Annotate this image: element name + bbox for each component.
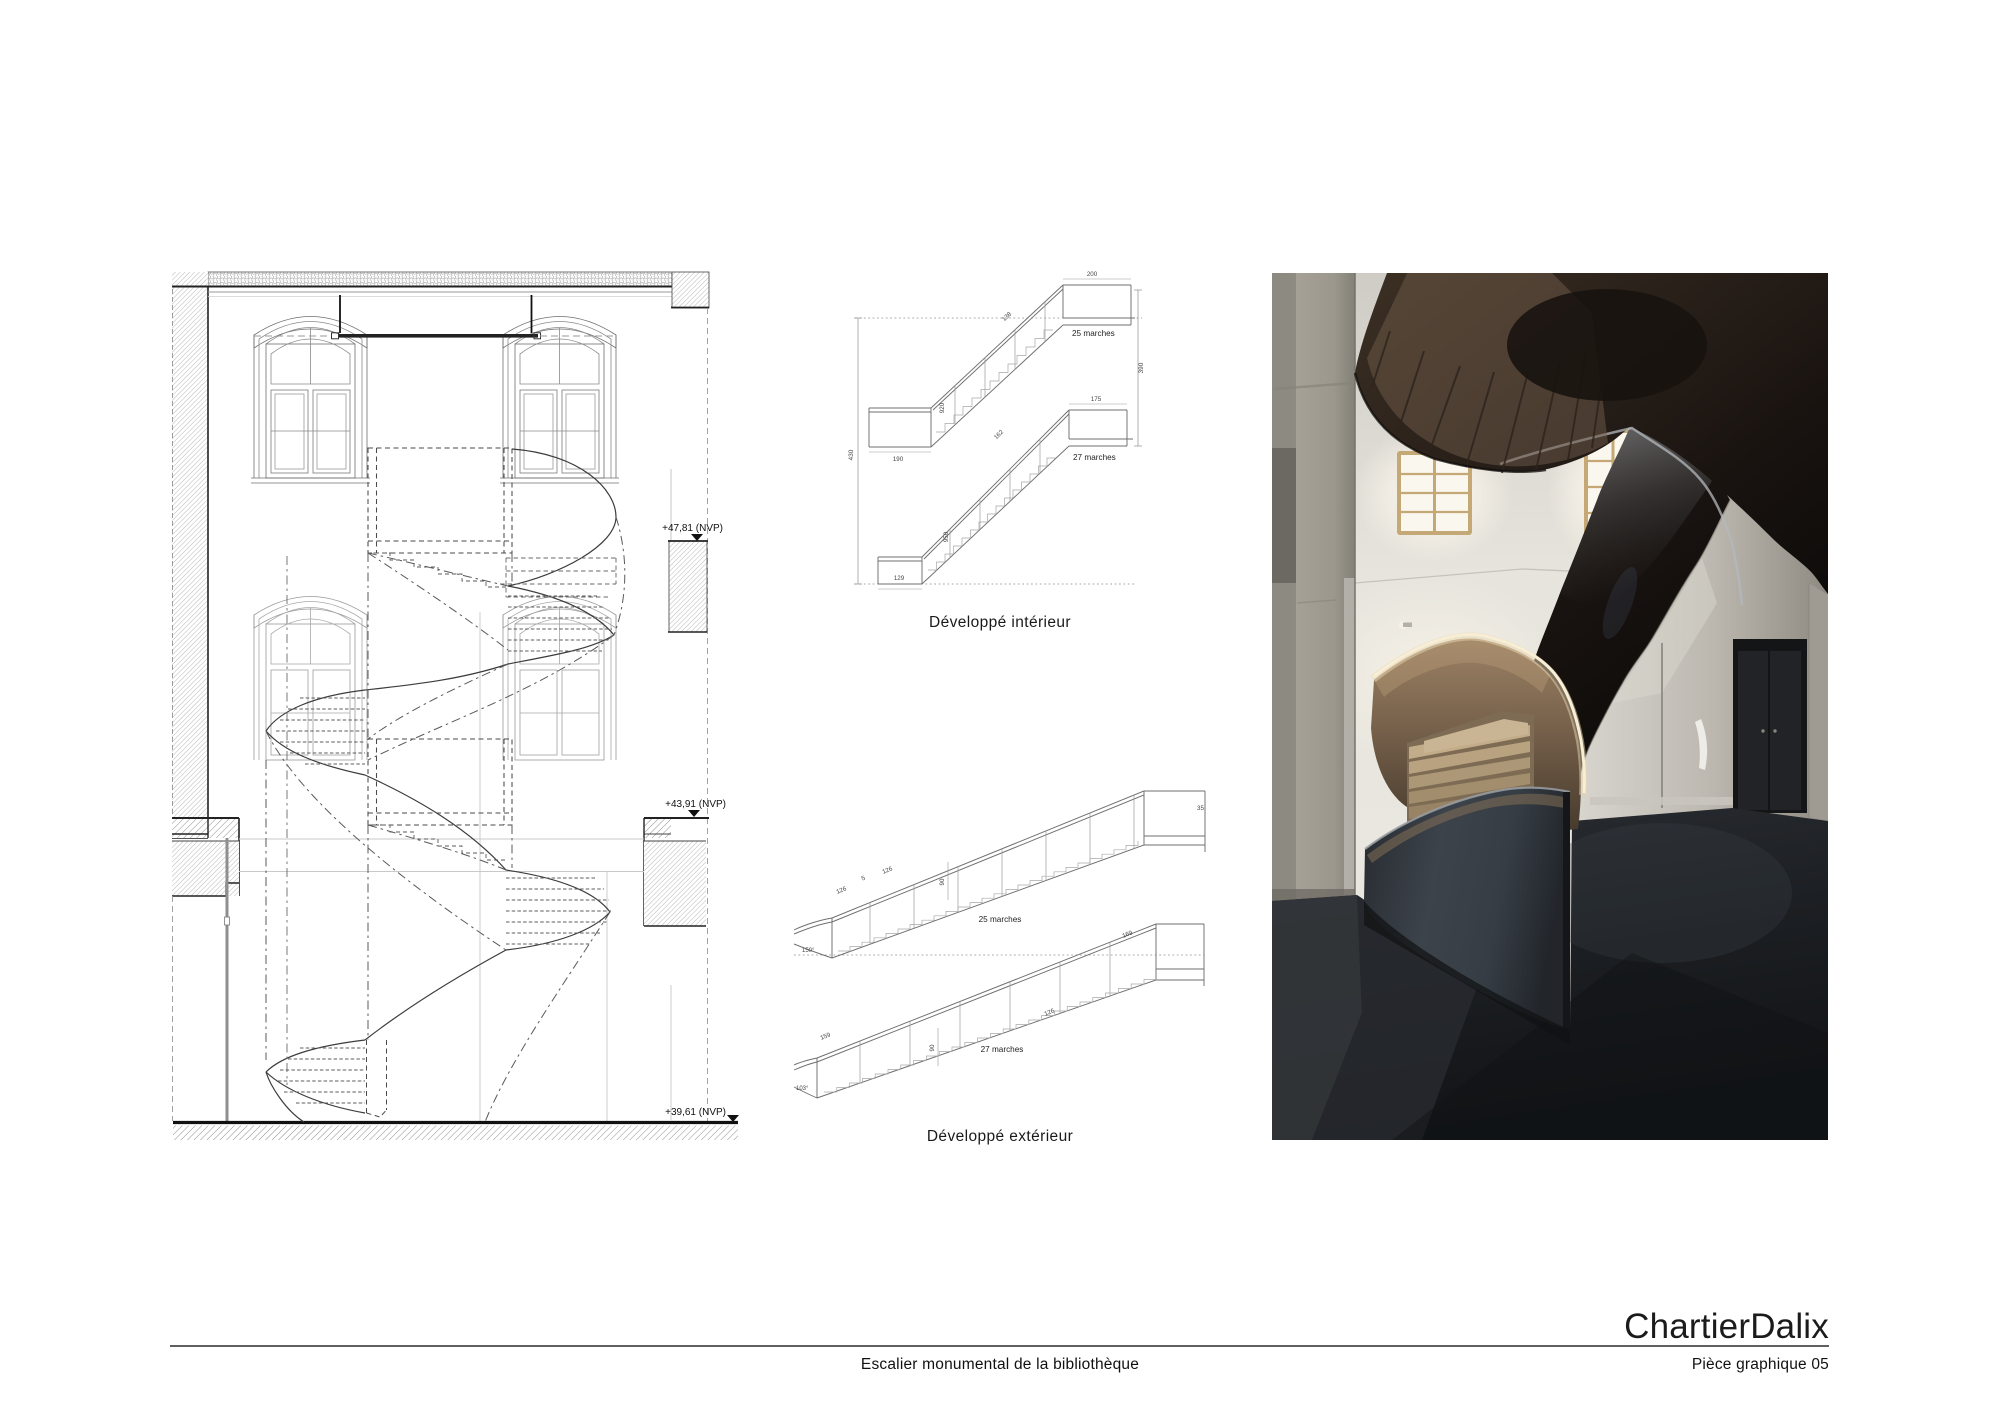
svg-text:126: 126 — [881, 865, 894, 876]
svg-text:390: 390 — [1138, 362, 1145, 373]
svg-text:190: 190 — [893, 456, 904, 463]
svg-text:Escalier monumental de la bibl: Escalier monumental de la bibliothèque — [861, 1356, 1139, 1373]
svg-text:138: 138 — [1001, 310, 1014, 323]
svg-text:126: 126 — [1043, 1007, 1056, 1018]
svg-text:129: 129 — [894, 575, 905, 582]
svg-text:ChartierDalix: ChartierDalix — [1624, 1307, 1829, 1346]
svg-text:25 marches: 25 marches — [979, 915, 1022, 924]
svg-text:126: 126 — [835, 885, 848, 896]
svg-text:90: 90 — [929, 1044, 936, 1051]
svg-text:159: 159 — [819, 1031, 832, 1042]
svg-text:150°: 150° — [802, 948, 815, 954]
svg-text:35: 35 — [1197, 805, 1204, 812]
svg-text:175: 175 — [1091, 396, 1102, 403]
svg-text:200: 200 — [1087, 271, 1098, 278]
svg-text:920: 920 — [939, 402, 946, 413]
svg-text:103°: 103° — [796, 1086, 809, 1092]
svg-text:Développé extérieur: Développé extérieur — [927, 1128, 1073, 1145]
svg-text:27 marches: 27 marches — [981, 1045, 1024, 1054]
svg-text:5: 5 — [861, 875, 867, 883]
svg-text:25 marches: 25 marches — [1072, 329, 1115, 338]
svg-text:162: 162 — [993, 428, 1006, 441]
svg-text:90: 90 — [939, 878, 946, 885]
svg-text:Pièce graphique 05: Pièce graphique 05 — [1692, 1356, 1829, 1373]
svg-text:+39,61 (NVP): +39,61 (NVP) — [665, 1107, 726, 1118]
svg-text:+47,81 (NVP): +47,81 (NVP) — [662, 523, 723, 534]
svg-text:950: 950 — [943, 531, 950, 542]
svg-text:169: 169 — [1121, 929, 1134, 940]
svg-text:Développé intérieur: Développé intérieur — [929, 614, 1071, 631]
svg-text:+43,91 (NVP): +43,91 (NVP) — [665, 799, 726, 810]
svg-text:430: 430 — [848, 449, 855, 460]
svg-text:27 marches: 27 marches — [1073, 453, 1116, 462]
